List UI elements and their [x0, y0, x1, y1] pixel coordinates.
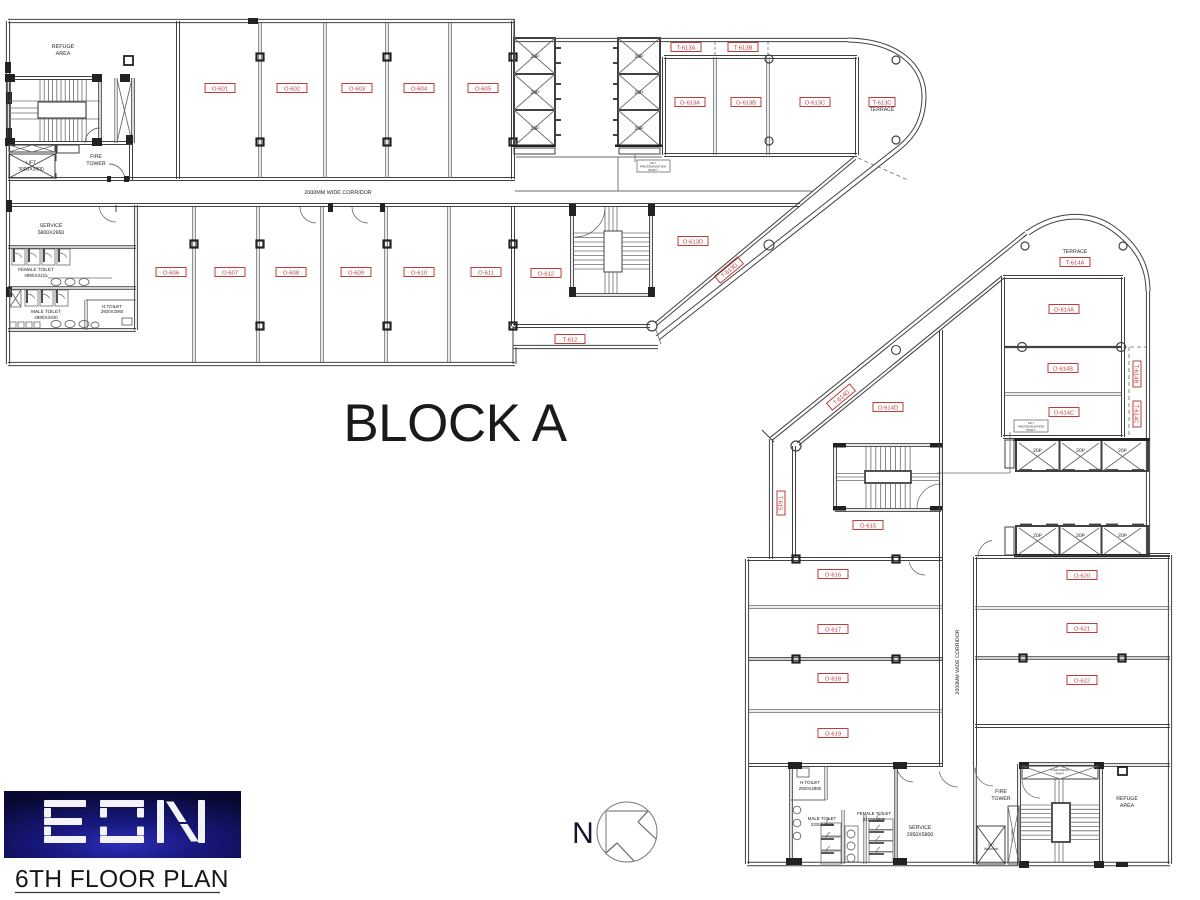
- svg-text:T-614A: T-614A: [1066, 259, 1085, 266]
- svg-text:O-604: O-604: [411, 85, 428, 92]
- svg-text:FEMALE TOILET: FEMALE TOILET: [18, 267, 54, 272]
- svg-text:26P: 26P: [635, 126, 645, 132]
- svg-text:20P: 20P: [1076, 448, 1086, 454]
- svg-text:O-603: O-603: [349, 85, 365, 92]
- svg-text:TOWER: TOWER: [86, 161, 105, 167]
- svg-text:O-614B: O-614B: [1053, 365, 1073, 372]
- svg-text:AREA: AREA: [56, 51, 71, 57]
- svg-text:20P: 20P: [1118, 448, 1128, 454]
- svg-text:26P: 26P: [635, 54, 645, 60]
- svg-text:TOWER: TOWER: [991, 796, 1010, 802]
- svg-text:BLOCK A: BLOCK A: [343, 394, 567, 453]
- svg-text:SERVICE: SERVICE: [40, 223, 63, 229]
- svg-text:3000X3000: 3000X3000: [18, 167, 44, 173]
- svg-text:O-615: O-615: [860, 522, 876, 529]
- svg-text:SHAFT: SHAFT: [648, 168, 658, 172]
- svg-text:26P: 26P: [635, 90, 645, 96]
- svg-text:T.P. SHAFT: T.P. SHAFT: [1011, 828, 1014, 842]
- svg-text:O-619: O-619: [825, 730, 841, 737]
- svg-text:O-610: O-610: [411, 269, 427, 276]
- svg-text:O-621: O-621: [1074, 625, 1090, 632]
- svg-text:2920X2880: 2920X2880: [799, 786, 822, 791]
- svg-text:O-613C: O-613C: [805, 99, 825, 106]
- svg-text:3215X4980: 3215X4980: [863, 817, 886, 822]
- svg-text:O-601: O-601: [212, 85, 228, 92]
- svg-text:O-614C: O-614C: [1054, 409, 1074, 416]
- svg-text:O-612: O-612: [538, 270, 554, 277]
- svg-text:AREA: AREA: [1120, 803, 1135, 809]
- svg-text:O-613A: O-613A: [680, 99, 700, 106]
- svg-text:N: N: [572, 817, 594, 850]
- svg-text:20P: 20P: [1118, 533, 1128, 539]
- svg-text:O-606: O-606: [163, 269, 179, 276]
- svg-text:O-622: O-622: [1074, 677, 1090, 684]
- svg-text:T-615: T-615: [777, 496, 784, 511]
- svg-text:26P: 26P: [531, 90, 541, 96]
- svg-text:O-618: O-618: [825, 675, 841, 682]
- svg-text:SHAFT: SHAFT: [1055, 772, 1064, 776]
- svg-text:2000MM WIDE CORRIDOR: 2000MM WIDE CORRIDOR: [304, 190, 371, 196]
- svg-text:2000MM WIDE CORRIDOR: 2000MM WIDE CORRIDOR: [955, 629, 961, 694]
- svg-text:6TH FLOOR PLAN: 6TH FLOOR PLAN: [15, 866, 229, 893]
- svg-text:O-613B: O-613B: [736, 99, 756, 106]
- svg-text:20P: 20P: [1033, 448, 1043, 454]
- svg-text:FEMALE TOILET: FEMALE TOILET: [857, 811, 891, 816]
- svg-text:FIRE: FIRE: [995, 789, 1007, 795]
- svg-text:O-607: O-607: [222, 269, 238, 276]
- svg-text:O-602: O-602: [284, 85, 300, 92]
- svg-text:2920X2060: 2920X2060: [101, 309, 124, 314]
- svg-text:4980X3215: 4980X3215: [24, 273, 48, 278]
- svg-text:26P: 26P: [531, 126, 541, 132]
- svg-text:2900X900: 2900X900: [984, 847, 999, 851]
- svg-text:TERRACE: TERRACE: [1063, 249, 1088, 255]
- svg-text:MALE TOILET: MALE TOILET: [808, 816, 837, 821]
- svg-text:20P: 20P: [1033, 533, 1043, 539]
- svg-text:REFUGE: REFUGE: [1116, 796, 1138, 802]
- svg-text:O-608: O-608: [283, 269, 299, 276]
- svg-text:T-613A: T-613A: [677, 44, 696, 51]
- svg-text:SERVICE: SERVICE: [909, 825, 932, 831]
- svg-text:REFUGE: REFUGE: [52, 44, 75, 50]
- svg-text:O-614A: O-614A: [1054, 306, 1074, 313]
- svg-text:O-609: O-609: [348, 269, 364, 276]
- svg-text:3335X4980: 3335X4980: [811, 822, 834, 827]
- svg-text:O-605: O-605: [475, 85, 491, 92]
- svg-text:O-616: O-616: [825, 571, 841, 578]
- svg-text:2950X5800: 2950X5800: [907, 832, 934, 838]
- svg-text:O-613D: O-613D: [683, 238, 703, 245]
- svg-text:T-613C: T-613C: [872, 99, 891, 106]
- svg-text:T-614C: T-614C: [1133, 404, 1140, 423]
- svg-text:O-614D: O-614D: [878, 404, 898, 411]
- svg-text:MALE TOILET: MALE TOILET: [31, 309, 61, 314]
- svg-text:26P: 26P: [531, 54, 541, 60]
- svg-text:O-617: O-617: [825, 626, 841, 633]
- svg-text:T-612: T-612: [563, 336, 578, 343]
- svg-text:SHAFT: SHAFT: [1026, 428, 1036, 432]
- svg-text:LIFT: LIFT: [26, 160, 36, 166]
- svg-text:O-611: O-611: [478, 269, 494, 276]
- svg-text:O-620: O-620: [1074, 572, 1090, 579]
- svg-text:4980X3330: 4980X3330: [34, 315, 58, 320]
- svg-text:H.TOILET: H.TOILET: [800, 780, 820, 785]
- svg-text:TERRACE: TERRACE: [870, 107, 895, 113]
- svg-text:T-613B: T-613B: [734, 44, 753, 51]
- svg-text:5800X2950: 5800X2950: [38, 230, 65, 236]
- svg-text:20P: 20P: [1076, 533, 1086, 539]
- svg-text:FIRE: FIRE: [90, 154, 102, 160]
- svg-text:T-614B: T-614B: [1133, 365, 1140, 384]
